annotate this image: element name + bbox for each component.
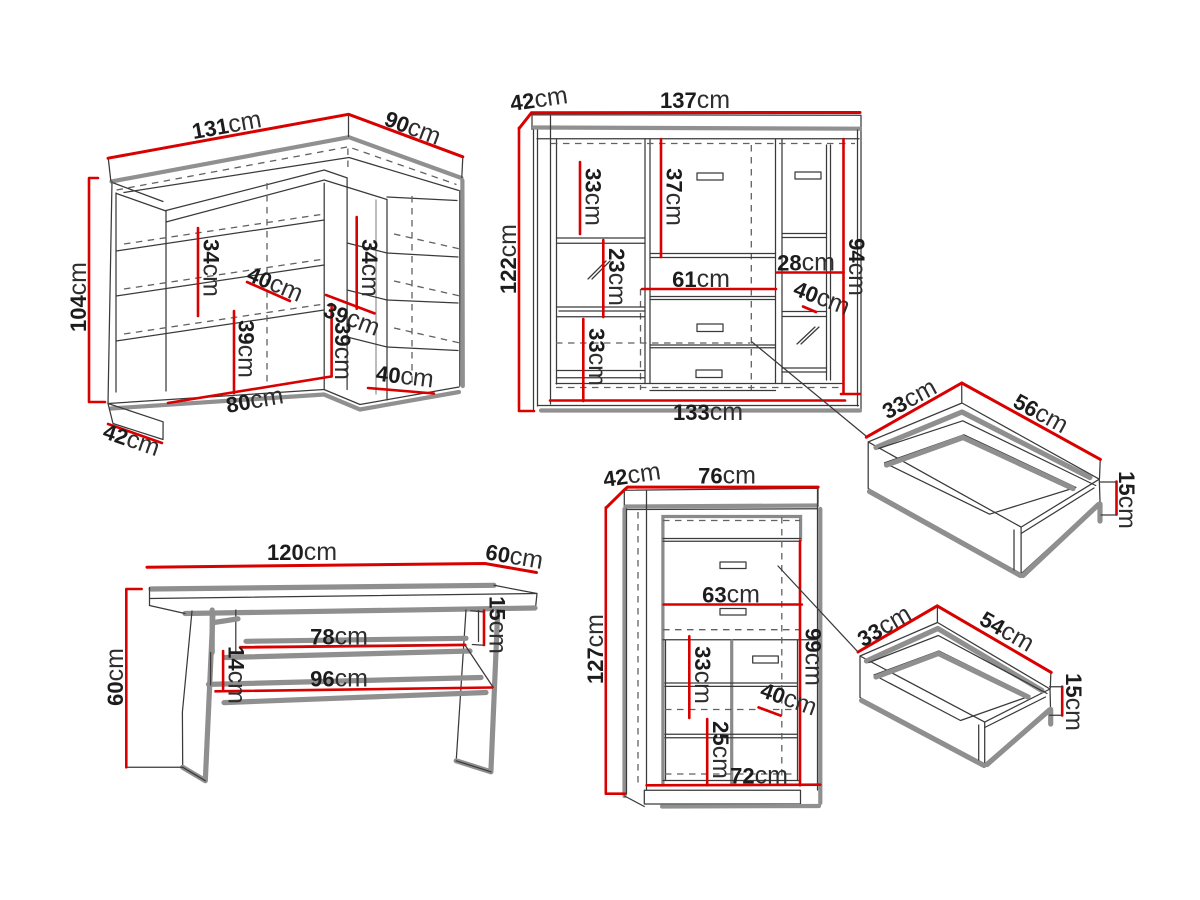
- svg-text:137cm: 137cm: [660, 86, 730, 114]
- svg-text:63cm: 63cm: [702, 581, 760, 609]
- svg-text:104cm: 104cm: [64, 262, 92, 332]
- svg-text:34cm: 34cm: [356, 239, 384, 297]
- svg-text:122cm: 122cm: [494, 224, 522, 294]
- svg-text:34cm: 34cm: [198, 239, 226, 297]
- svg-text:94cm: 94cm: [843, 238, 871, 296]
- svg-text:78cm: 78cm: [310, 623, 368, 651]
- svg-text:120cm: 120cm: [267, 538, 337, 566]
- svg-text:72cm: 72cm: [730, 762, 788, 790]
- svg-text:39cm: 39cm: [233, 320, 261, 378]
- svg-text:60cm: 60cm: [101, 648, 129, 706]
- svg-text:15cm: 15cm: [484, 596, 512, 654]
- svg-text:61cm: 61cm: [672, 265, 730, 293]
- svg-text:127cm: 127cm: [581, 614, 609, 684]
- svg-text:96cm: 96cm: [310, 665, 368, 693]
- svg-text:33cm: 33cm: [583, 328, 611, 386]
- svg-text:23cm: 23cm: [603, 248, 631, 306]
- svg-text:15cm: 15cm: [1113, 471, 1141, 529]
- svg-text:14cm: 14cm: [223, 646, 251, 704]
- svg-text:37cm: 37cm: [661, 168, 689, 226]
- svg-text:15cm: 15cm: [1060, 673, 1088, 731]
- svg-text:39cm: 39cm: [329, 322, 357, 380]
- svg-text:33cm: 33cm: [580, 168, 608, 226]
- svg-text:133cm: 133cm: [673, 398, 743, 426]
- svg-text:33cm: 33cm: [689, 646, 717, 704]
- svg-text:28cm: 28cm: [777, 249, 835, 277]
- svg-text:76cm: 76cm: [698, 462, 756, 490]
- svg-text:99cm: 99cm: [800, 628, 828, 686]
